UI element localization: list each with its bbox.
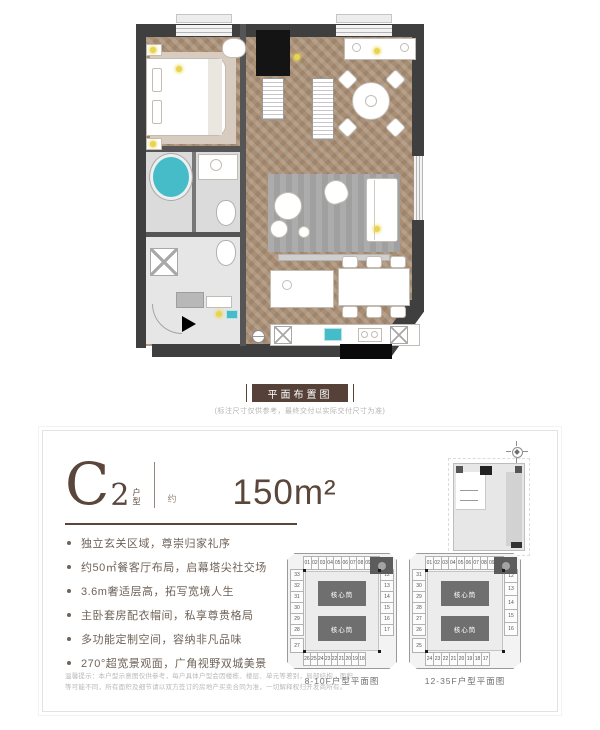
unit-suffix: 户 型 bbox=[132, 488, 140, 506]
chair bbox=[390, 256, 406, 268]
closet bbox=[312, 78, 334, 140]
light-icon bbox=[374, 226, 380, 232]
feature-text: 独立玄关区域，尊崇归家礼序 bbox=[81, 535, 231, 551]
bench bbox=[206, 296, 232, 308]
unit-number-cell: 14 bbox=[504, 595, 518, 609]
unit-col-right: 121314151617 bbox=[380, 570, 394, 636]
plan-compass-icon bbox=[252, 330, 265, 343]
toilet bbox=[216, 200, 236, 226]
floorplate-outline: 01020304050607080910 313029282726 25 242… bbox=[409, 553, 521, 669]
floorplate-12-35f: 01020304050607080910 313029282726 25 242… bbox=[409, 553, 521, 687]
dining-table bbox=[338, 268, 410, 306]
burner bbox=[361, 331, 368, 338]
pillow bbox=[152, 68, 162, 92]
unit-key-plan bbox=[453, 463, 525, 551]
bathtub bbox=[150, 154, 192, 200]
window bbox=[336, 25, 392, 36]
closet bbox=[262, 78, 284, 120]
unit-letter: C bbox=[65, 461, 109, 509]
bullet-icon bbox=[67, 541, 71, 545]
light-icon bbox=[176, 66, 182, 72]
floorplate-center: 核心筒 核心筒 bbox=[427, 571, 503, 651]
unit-number-cell: 27 bbox=[290, 638, 304, 653]
divider bbox=[154, 462, 155, 508]
black-cabinet bbox=[340, 344, 392, 359]
keyplan-room bbox=[456, 472, 486, 510]
window-right bbox=[414, 156, 423, 220]
kitchen-sink bbox=[324, 328, 342, 341]
bed-throw bbox=[208, 59, 222, 135]
core-tube-block: 核心筒 bbox=[318, 616, 366, 641]
core-tube-block: 核心筒 bbox=[318, 581, 366, 606]
partition bbox=[192, 152, 196, 232]
unit-number-cell: 13 bbox=[504, 582, 518, 596]
feature-text: 270°超宽景观面，广角视野双城美景 bbox=[81, 655, 267, 671]
unit-col-right: 1213141516 bbox=[504, 570, 518, 636]
feature-item: 多功能定制空间，容纳非凡品味 bbox=[67, 627, 267, 651]
unit-info-card: C 2 户 型 约 150m² 独立玄关区域，尊崇归家礼序 约50㎡餐客厅布局，… bbox=[42, 430, 558, 712]
appliance bbox=[390, 326, 408, 344]
feature-item: 主卧套房配衣帽间，私享尊贵格局 bbox=[67, 603, 267, 627]
island-sink bbox=[282, 280, 292, 290]
unit-number-cell: 28 bbox=[290, 624, 304, 636]
pillow bbox=[152, 100, 162, 124]
core-tube-block: 核心筒 bbox=[441, 616, 489, 641]
floorplate-outline: 01020304050607080910 333231302928 27 262… bbox=[287, 553, 397, 669]
wall-right-lower bbox=[412, 220, 424, 306]
unit-col-left: 333231302928 bbox=[290, 570, 304, 636]
wardrobe-black bbox=[256, 30, 290, 76]
entrance-arrow-icon bbox=[182, 316, 196, 332]
balcony-ledge bbox=[336, 14, 392, 23]
keyplan-strip bbox=[506, 472, 522, 546]
approx-label: 约 bbox=[167, 492, 176, 505]
keyplan-block bbox=[480, 466, 492, 475]
sink bbox=[210, 159, 222, 171]
decor-vase bbox=[352, 43, 361, 52]
bullet-icon bbox=[67, 565, 71, 569]
lamp-icon bbox=[150, 141, 156, 147]
window bbox=[176, 25, 232, 36]
armchair bbox=[222, 38, 246, 58]
feature-item: 独立玄关区域，尊崇归家礼序 bbox=[67, 531, 267, 555]
floorplate-caption: 8-10F户型平面图 bbox=[287, 675, 397, 687]
unit-number-cell: 16 bbox=[504, 622, 518, 636]
sofa bbox=[366, 178, 398, 242]
coffee-table bbox=[274, 192, 302, 220]
partition bbox=[240, 146, 246, 346]
keyplan-column bbox=[515, 466, 522, 473]
unit-row-top: 01020304050607080910 bbox=[304, 556, 380, 570]
unit-number-cell: 17 bbox=[380, 624, 394, 636]
light-icon bbox=[294, 54, 300, 60]
chair bbox=[342, 306, 358, 318]
chair bbox=[366, 306, 382, 318]
feature-item: 3.6m奢适层高，拓写宽境人生 bbox=[67, 579, 267, 603]
feature-text: 约50㎡餐客厅布局，启幕塔尖社交场 bbox=[81, 559, 267, 575]
keyplan-line bbox=[460, 490, 478, 491]
feature-item: 约50㎡餐客厅布局，启幕塔尖社交场 bbox=[67, 555, 267, 579]
title-underline bbox=[65, 523, 297, 525]
plan-title-badge: 平面布置图 bbox=[252, 384, 348, 402]
unit-number-cell: 15 bbox=[504, 609, 518, 623]
appliance bbox=[274, 326, 292, 344]
light-icon bbox=[216, 311, 222, 317]
bullet-icon bbox=[67, 589, 71, 593]
unit-number: 2 bbox=[110, 482, 129, 509]
chair bbox=[366, 256, 382, 268]
unit-number-cell: 18 bbox=[358, 652, 366, 666]
feature-list: 独立玄关区域，尊崇归家礼序 约50㎡餐客厅布局，启幕塔尖社交场 3.6m奢适层高… bbox=[67, 531, 267, 675]
kitchen-island bbox=[270, 270, 334, 308]
unit-suffix-top: 户 bbox=[132, 488, 140, 497]
unit-row-bottom: 2423222120191817 bbox=[426, 652, 490, 666]
keyplan-line bbox=[460, 500, 478, 501]
keyplan-column bbox=[456, 466, 463, 473]
unit-row-bottom: 262524232221201918 bbox=[304, 652, 366, 666]
shower bbox=[150, 248, 178, 276]
unit-number-cell: 17 bbox=[481, 652, 490, 666]
feature-text: 3.6m奢适层高，拓写宽境人生 bbox=[81, 583, 234, 599]
unit-number-cell: 25 bbox=[412, 638, 426, 653]
toilet bbox=[216, 240, 236, 266]
table-decor bbox=[365, 95, 377, 107]
plan-note: (标注尺寸仅供参考，最终交付以实际交付尺寸为准) bbox=[0, 406, 600, 416]
partition bbox=[146, 232, 242, 237]
core-tube-block: 核心筒 bbox=[441, 581, 489, 606]
floorplate-caption: 12-35F户型平面图 bbox=[409, 675, 521, 687]
stair-block bbox=[494, 557, 517, 574]
stair-block bbox=[370, 557, 393, 574]
unit-area: 150m² bbox=[233, 477, 337, 509]
unit-suffix-bottom: 型 bbox=[132, 497, 140, 506]
chair bbox=[390, 306, 406, 318]
lamp-icon bbox=[150, 47, 156, 53]
light-icon bbox=[374, 48, 380, 54]
wall-left bbox=[136, 24, 146, 348]
bullet-icon bbox=[67, 661, 71, 665]
feature-text: 多功能定制空间，容纳非凡品味 bbox=[81, 631, 242, 647]
unit-number-cell: 26 bbox=[412, 624, 426, 636]
keyplan-block bbox=[511, 542, 522, 548]
bullet-icon bbox=[67, 637, 71, 641]
decor-vase bbox=[400, 43, 409, 52]
floorplate-center: 核心筒 核心筒 bbox=[305, 571, 379, 651]
floor-plan bbox=[128, 8, 432, 372]
bullet-icon bbox=[67, 613, 71, 617]
floorplate-8-10f: 01020304050607080910 333231302928 27 262… bbox=[287, 553, 397, 687]
burner bbox=[371, 331, 378, 338]
balcony-ledge bbox=[176, 14, 232, 23]
screenshot-root: { "colors":{ "wall":"#3f3f3f", "wood":"#… bbox=[0, 0, 600, 730]
unit-title: C 2 户 型 约 150m² bbox=[65, 461, 337, 509]
pouf bbox=[298, 226, 310, 238]
coffee-table-small bbox=[270, 220, 288, 238]
unit-col-left: 313029282726 bbox=[412, 570, 426, 636]
feature-text: 主卧套房配衣帽间，私享尊贵格局 bbox=[81, 607, 254, 623]
powder-sink bbox=[226, 310, 238, 319]
unit-row-top: 01020304050607080910 bbox=[426, 556, 504, 570]
chair bbox=[342, 256, 358, 268]
